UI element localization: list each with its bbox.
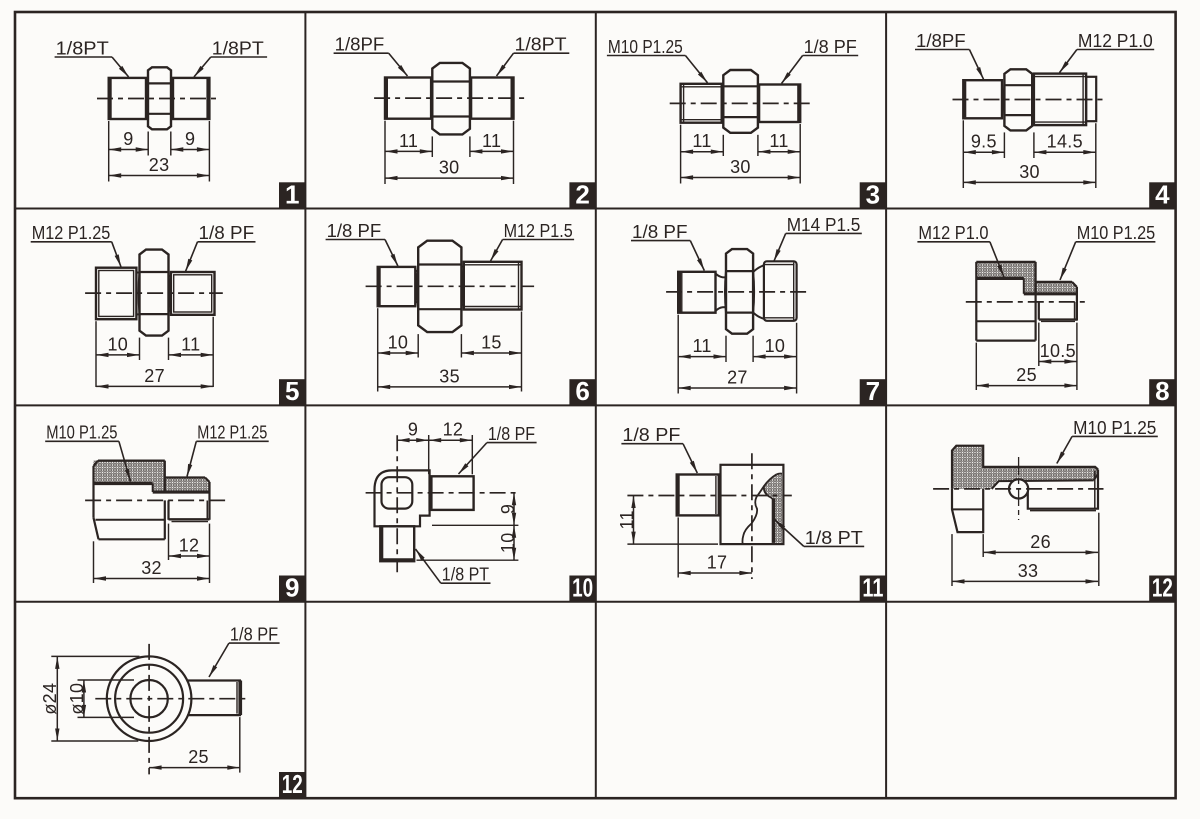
svg-text:1/8 PT: 1/8 PT [442,564,489,585]
svg-text:11: 11 [181,334,200,354]
svg-text:10: 10 [572,573,593,603]
svg-text:17: 17 [707,553,728,573]
svg-text:M14 P1.5: M14 P1.5 [787,214,861,235]
svg-text:10: 10 [107,334,128,354]
svg-text:9: 9 [498,504,518,514]
svg-text:30: 30 [730,157,751,177]
svg-text:M10 P1.25: M10 P1.25 [46,422,117,443]
svg-text:1/8 PF: 1/8 PF [230,624,278,645]
svg-text:9.5: 9.5 [971,132,997,152]
svg-text:35: 35 [439,366,460,386]
svg-text:M10 P1.25: M10 P1.25 [608,36,683,57]
svg-text:M12 P1.25: M12 P1.25 [197,422,267,443]
svg-text:1/8 PF: 1/8 PF [199,222,255,243]
svg-text:11: 11 [692,131,711,151]
svg-text:1/8PT: 1/8PT [515,34,567,55]
svg-text:M10 P1.25: M10 P1.25 [1073,417,1156,438]
svg-text:1/8 PT: 1/8 PT [805,527,863,548]
svg-text:1/8PF: 1/8PF [335,34,385,55]
svg-text:7: 7 [866,376,880,406]
svg-text:11: 11 [862,573,883,603]
svg-text:1/8PT: 1/8PT [212,37,264,58]
svg-text:M12 P1.5: M12 P1.5 [504,220,573,241]
svg-text:ø10: ø10 [67,683,87,715]
svg-text:2: 2 [575,179,589,209]
svg-text:10: 10 [765,336,786,356]
svg-text:11: 11 [769,131,788,151]
svg-text:9: 9 [408,420,418,440]
svg-text:14.5: 14.5 [1047,132,1083,152]
svg-text:25: 25 [188,747,209,767]
svg-text:12: 12 [443,420,464,440]
svg-text:1/8 PF: 1/8 PF [804,36,857,57]
svg-text:27: 27 [144,366,165,386]
svg-text:9: 9 [185,129,195,149]
svg-text:30: 30 [439,158,460,178]
svg-text:M12 P1.25: M12 P1.25 [32,222,111,243]
svg-text:27: 27 [727,368,748,388]
svg-text:10: 10 [498,532,518,553]
svg-text:4: 4 [1155,179,1170,209]
svg-text:1: 1 [285,179,299,209]
svg-text:11: 11 [692,336,711,356]
svg-text:12: 12 [282,769,303,799]
svg-text:12: 12 [1152,573,1173,603]
svg-text:1/8 PF: 1/8 PF [622,424,680,445]
svg-text:M12 P1.0: M12 P1.0 [918,222,988,243]
svg-text:1/8 PF: 1/8 PF [632,221,688,242]
svg-text:11: 11 [482,131,501,151]
svg-text:9: 9 [123,129,133,149]
svg-text:1/8PF: 1/8PF [916,30,966,51]
svg-text:M10 P1.25: M10 P1.25 [1077,222,1156,243]
svg-text:33: 33 [1018,561,1039,581]
svg-text:1/8PT: 1/8PT [56,37,109,58]
svg-text:26: 26 [1030,532,1051,552]
svg-text:15: 15 [481,333,502,353]
svg-text:23: 23 [149,155,170,175]
svg-text:10: 10 [388,333,409,353]
svg-text:1/8 PF: 1/8 PF [488,423,535,444]
svg-text:5: 5 [285,376,299,406]
svg-text:6: 6 [575,376,589,406]
svg-text:32: 32 [141,558,162,578]
svg-text:M12 P1.0: M12 P1.0 [1078,30,1153,51]
svg-text:1/8 PF: 1/8 PF [327,220,382,241]
svg-text:8: 8 [1155,376,1169,406]
svg-text:10.5: 10.5 [1040,341,1076,361]
svg-text:9: 9 [285,573,299,603]
svg-text:3: 3 [866,179,880,209]
svg-text:11: 11 [617,510,637,529]
svg-text:11: 11 [399,131,418,151]
svg-text:30: 30 [1019,162,1040,182]
svg-text:25: 25 [1016,365,1037,385]
svg-text:ø24: ø24 [40,683,60,715]
svg-text:12: 12 [179,536,200,556]
